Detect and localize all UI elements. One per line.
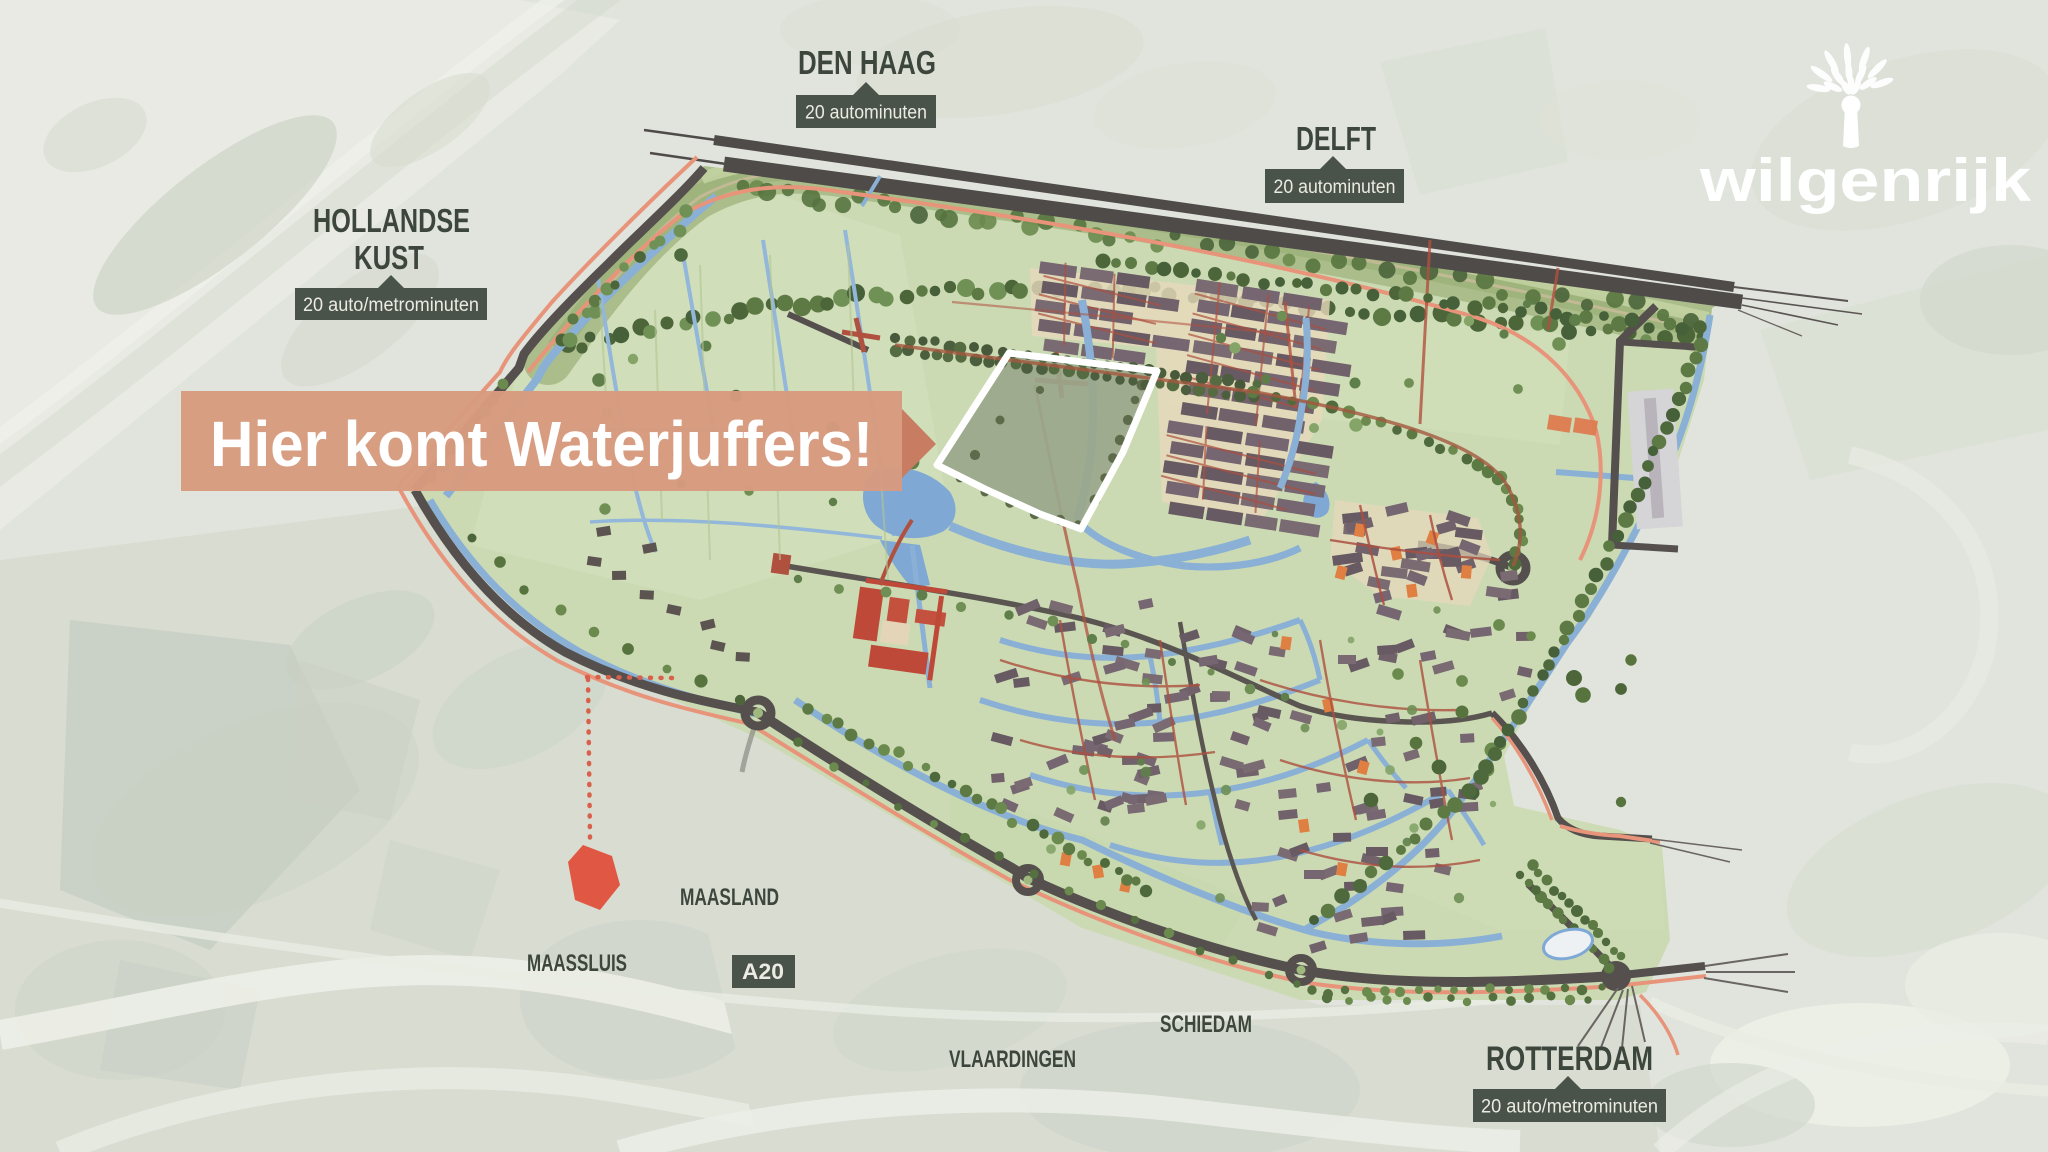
- svg-text:Hier komt Waterjuffers!: Hier komt Waterjuffers!: [210, 408, 873, 480]
- svg-text:20 auto/metrominuten: 20 auto/metrominuten: [303, 295, 479, 316]
- svg-text:A20: A20: [742, 959, 784, 984]
- svg-text:20 autominuten: 20 autominuten: [1274, 177, 1396, 198]
- svg-text:ROTTERDAM: ROTTERDAM: [1486, 1040, 1653, 1078]
- svg-text:DELFT: DELFT: [1296, 120, 1376, 157]
- svg-text:VLAARDINGEN: VLAARDINGEN: [949, 1046, 1076, 1073]
- svg-text:20 autominuten: 20 autominuten: [805, 103, 927, 124]
- svg-text:MAASLAND: MAASLAND: [680, 884, 779, 911]
- svg-text:HOLLANDSE: HOLLANDSE: [313, 202, 470, 239]
- svg-text:20 auto/metrominuten: 20 auto/metrominuten: [1481, 1097, 1658, 1118]
- svg-text:wilgenrijk: wilgenrijk: [1699, 147, 2032, 214]
- svg-text:MAASSLUIS: MAASSLUIS: [527, 950, 627, 977]
- svg-text:SCHIEDAM: SCHIEDAM: [1160, 1011, 1252, 1038]
- svg-text:DEN HAAG: DEN HAAG: [798, 44, 936, 81]
- svg-text:KUST: KUST: [354, 239, 424, 276]
